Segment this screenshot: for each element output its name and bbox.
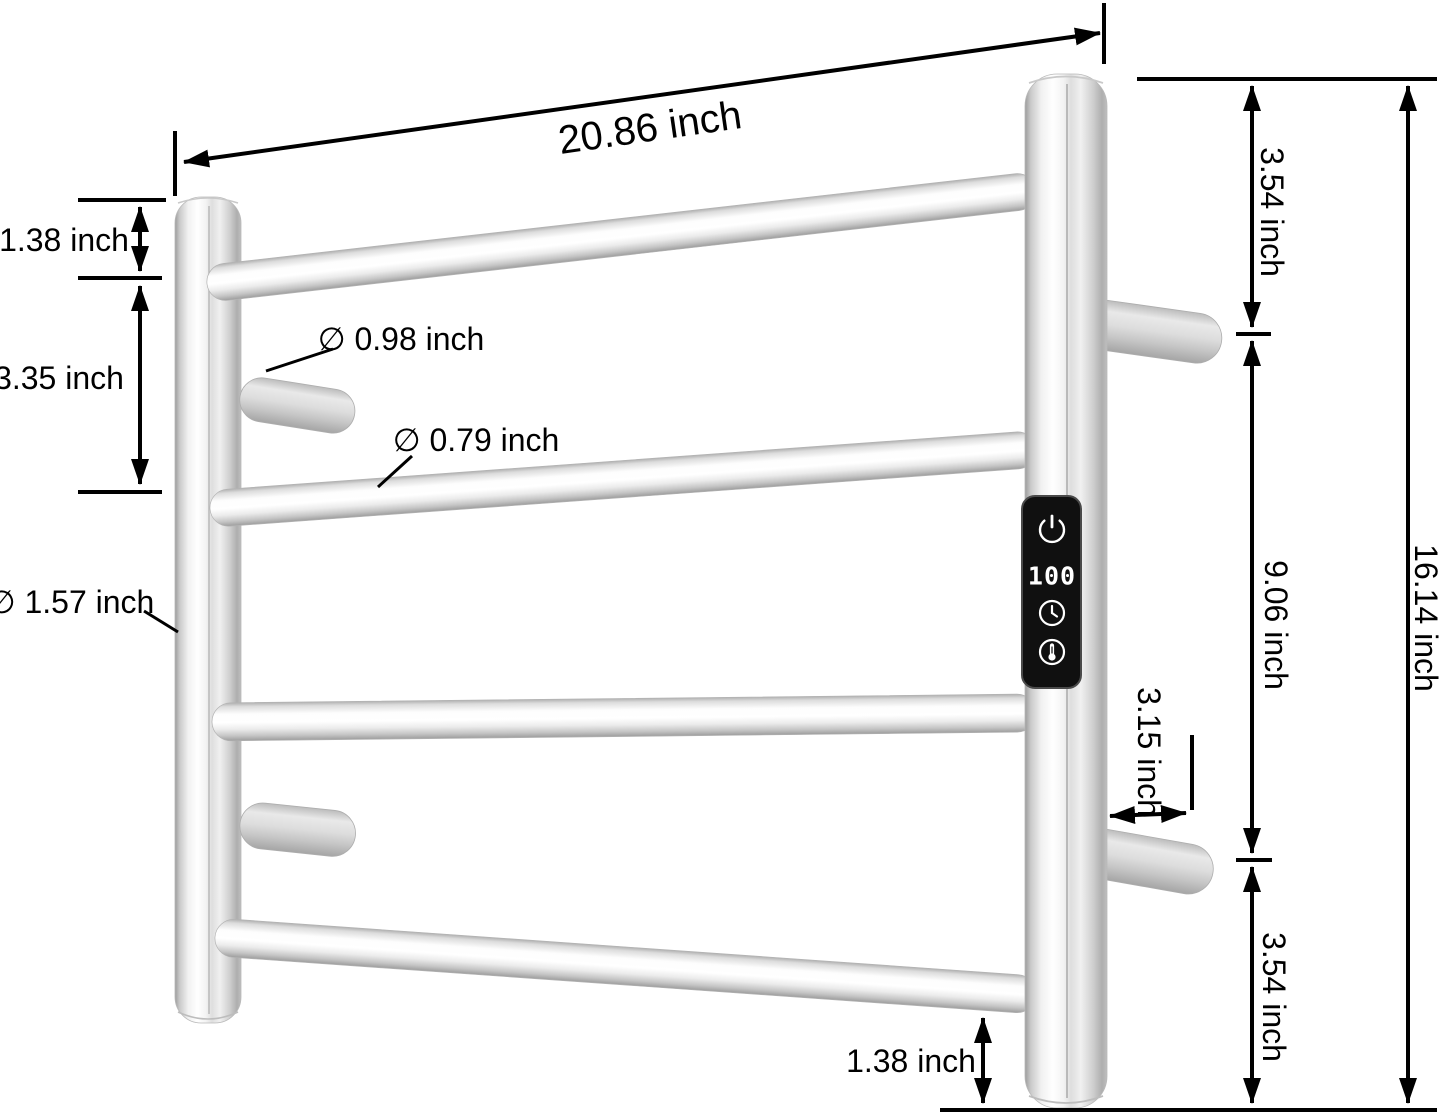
towel-warmer-dimension-diagram: 100 [0,0,1445,1117]
dim-label-left-top-gap: 1.38 inch [0,222,129,258]
towel-rail-2 [209,431,1038,528]
dim-label-total-height: 16.14 inch [1408,544,1444,692]
dim-label-post-diameter: ∅ 1.57 inch [0,584,154,620]
wall-mount-left-top [237,375,358,437]
diagram-canvas: 100 [0,0,1445,1117]
towel-rail-4 [214,918,1038,1014]
control-panel: 100 [1022,496,1081,688]
dim-label-bottom-gap: 1.38 inch [846,1043,976,1079]
panel-display: 100 [1028,562,1076,591]
dim-label-right-middle: 9.06 inch [1258,560,1294,690]
left-post [175,197,241,1023]
towel-rack-illustration: 100 [175,74,1225,1108]
dim-label-rail-diameter: ∅ 0.79 inch [393,422,560,458]
dim-label-right-top: 3.54 inch [1254,147,1290,277]
towel-rail-1 [205,172,1038,303]
dim-label-standoff-depth: 3.15 inch [1131,687,1167,817]
wall-mount-left-bottom [238,801,358,859]
dim-label-mount-diameter: ∅ 0.98 inch [318,321,485,357]
towel-rail-3 [212,694,1036,741]
dim-label-left-bar-spacing: 3.35 inch [0,360,124,396]
dim-label-top-width: 20.86 inch [556,93,745,163]
dim-label-right-bottom: 3.54 inch [1256,932,1292,1062]
